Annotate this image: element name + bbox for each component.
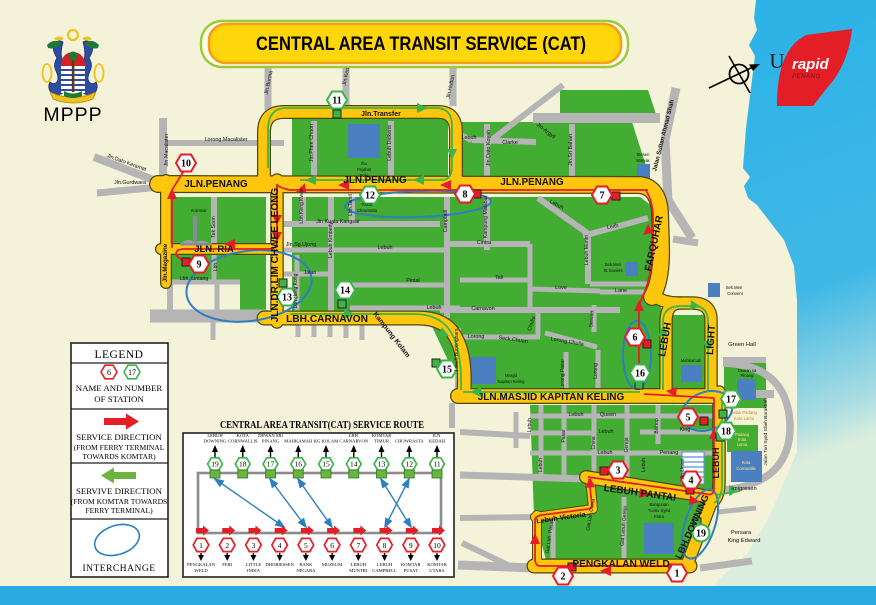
svg-text:Lebuh: Lebuh	[598, 450, 613, 456]
svg-text:Lorong: Lorong	[593, 363, 599, 379]
svg-text:LEBUH: LEBUH	[377, 562, 393, 567]
svg-text:PENGKALAN WELD: PENGKALAN WELD	[572, 559, 669, 570]
svg-text:5: 5	[686, 413, 691, 424]
svg-text:18: 18	[721, 427, 731, 438]
svg-text:Lbh Hong Kong: Lbh Hong Kong	[293, 273, 299, 308]
svg-text:Kapitan Keling: Kapitan Keling	[497, 379, 525, 384]
svg-text:Persara: Persara	[731, 530, 752, 536]
svg-text:14: 14	[340, 286, 350, 297]
svg-text:2: 2	[561, 572, 566, 583]
svg-text:Jln.Dato Koyah: Jln.Dato Koyah	[486, 130, 492, 167]
svg-text:DOWNING: DOWNING	[204, 439, 227, 444]
svg-text:Tunku Syed: Tunku Syed	[648, 508, 671, 513]
svg-text:16: 16	[635, 369, 645, 380]
svg-text:Jln.Macalister: Jln.Macalister	[164, 133, 170, 166]
svg-text:Masjid: Masjid	[505, 373, 518, 378]
svg-text:Polis: Polis	[359, 173, 368, 178]
svg-text:Lebuh: Lebuh	[462, 135, 477, 141]
svg-text:LITTLE: LITTLE	[246, 562, 262, 567]
svg-text:19: 19	[211, 460, 219, 469]
svg-text:Lebuh: Lebuh	[538, 458, 544, 472]
svg-text:Stewart: Stewart	[588, 310, 595, 328]
svg-text:4: 4	[689, 476, 694, 487]
svg-text:NAME AND NUMBER: NAME AND NUMBER	[76, 383, 163, 393]
svg-text:Lebuh Muntri: Lebuh Muntri	[584, 235, 590, 265]
svg-text:15: 15	[442, 365, 452, 376]
svg-text:MUZEUM: MUZEUM	[322, 562, 342, 567]
svg-text:Clarke: Clarke	[502, 140, 518, 146]
svg-text:Sek.Men: Sek.Men	[605, 262, 622, 267]
svg-text:Lbh.Tamil: Lbh.Tamil	[348, 194, 354, 215]
svg-text:Pejabat: Pejabat	[357, 167, 372, 172]
svg-text:Tali: Tali	[495, 275, 503, 281]
svg-text:7: 7	[356, 541, 360, 550]
svg-text:Lbh: Lbh	[213, 263, 219, 272]
svg-text:FERRY TERMINAL): FERRY TERMINAL)	[85, 506, 153, 515]
svg-text:Pinang: Pinang	[740, 373, 754, 378]
svg-text:3: 3	[616, 466, 621, 477]
svg-text:Campbell: Campbell	[443, 210, 449, 233]
svg-text:LEBUH: LEBUH	[207, 433, 223, 438]
svg-text:6: 6	[633, 333, 638, 344]
svg-text:Chowrasta: Chowrasta	[357, 208, 378, 213]
svg-text:MPPP: MPPP	[43, 104, 102, 126]
svg-text:Jln.Gurdwara: Jln.Gurdwara	[114, 180, 146, 186]
svg-text:JLN.MASJID KAPITAN KELING: JLN.MASJID KAPITAN KELING	[478, 392, 625, 403]
svg-text:Cornwallis: Cornwallis	[736, 466, 755, 471]
svg-text:4: 4	[278, 541, 282, 550]
svg-text:11: 11	[332, 96, 341, 107]
svg-text:JLN.PENANG: JLN.PENANG	[343, 175, 407, 186]
svg-text:WELD: WELD	[194, 568, 208, 573]
svg-text:15: 15	[322, 460, 330, 469]
svg-text:CHOWRASTA: CHOWRASTA	[395, 439, 424, 444]
svg-text:CENTRAL AREA TRANSIT SERVICE (: CENTRAL AREA TRANSIT SERVICE (CAT)	[256, 34, 586, 55]
svg-text:Kampung Malabar: Kampung Malabar	[483, 196, 489, 239]
svg-text:JLN. RIA: JLN. RIA	[194, 244, 234, 255]
svg-text:PENANG: PENANG	[792, 74, 821, 80]
svg-text:SERVICE DIRECTION: SERVICE DIRECTION	[76, 432, 162, 442]
svg-text:Lebuh Dickens: Lebuh Dickens	[387, 125, 393, 161]
svg-text:Lebuh: Lebuh	[427, 305, 442, 311]
svg-text:16: 16	[295, 460, 303, 469]
svg-text:Komtar: Komtar	[191, 208, 207, 214]
svg-text:Gereja: Gereja	[624, 437, 630, 452]
svg-text:Convent: Convent	[727, 291, 743, 296]
svg-text:Lbh.Keng Kwee: Lbh.Keng Kwee	[299, 188, 305, 224]
svg-text:13: 13	[378, 460, 386, 469]
svg-text:Pasar: Pasar	[561, 429, 567, 442]
svg-text:KOMTAR: KOMTAR	[427, 562, 447, 567]
svg-text:St.Xaviers: St.Xaviers	[603, 268, 622, 273]
svg-text:KOTA: KOTA	[237, 433, 250, 438]
svg-text:LBH.: LBH.	[349, 433, 359, 438]
svg-text:Cintra: Cintra	[477, 240, 491, 246]
svg-text:INTERCHANGE: INTERCHANGE	[82, 564, 155, 574]
svg-text:9: 9	[409, 541, 413, 550]
svg-text:King Edward: King Edward	[728, 538, 761, 544]
svg-text:CENTRAL AREA TRANSIT(CAT) SERV: CENTRAL AREA TRANSIT(CAT) SERVICE ROUTE	[220, 420, 424, 431]
svg-text:Love: Love	[555, 285, 567, 291]
svg-text:Ibu: Ibu	[361, 161, 367, 166]
svg-text:Lbh. Lintang: Lbh. Lintang	[180, 276, 209, 282]
svg-text:12: 12	[406, 460, 414, 469]
svg-text:Lorong: Lorong	[468, 334, 485, 340]
svg-text:JLN.PENANG: JLN.PENANG	[500, 177, 564, 188]
svg-text:Lebuh: Lebuh	[641, 458, 647, 472]
svg-text:KOMTAR: KOMTAR	[401, 562, 421, 567]
svg-text:Pintal: Pintal	[406, 278, 420, 284]
svg-text:CORNWALLIS: CORNWALLIS	[228, 439, 258, 444]
svg-text:Jln.Phee Choon: Jln.Phee Choon	[309, 124, 315, 162]
svg-text:rapid: rapid	[792, 56, 830, 73]
svg-text:6: 6	[330, 541, 334, 550]
svg-text:Jln.Sri Bahari: Jln.Sri Bahari	[568, 134, 574, 166]
svg-text:DHOBIESSEN: DHOBIESSEN	[265, 562, 294, 567]
svg-text:3: 3	[252, 541, 256, 550]
svg-text:Sek.Men: Sek.Men	[726, 285, 743, 290]
svg-text:TIMUR: TIMUR	[374, 439, 390, 444]
svg-text:10: 10	[433, 541, 441, 550]
svg-text:Green Hall: Green Hall	[728, 342, 756, 348]
svg-text:Lebuh: Lebuh	[378, 245, 393, 251]
svg-text:Lorong Pasar: Lorong Pasar	[560, 359, 566, 389]
svg-text:Jalan: Jalan	[304, 270, 317, 276]
svg-text:DEWAN SRI: DEWAN SRI	[258, 433, 283, 438]
svg-text:14: 14	[350, 460, 358, 469]
svg-text:Penang: Penang	[660, 450, 679, 456]
svg-text:1: 1	[199, 541, 203, 550]
svg-text:King: King	[680, 427, 691, 433]
svg-text:BANK: BANK	[299, 562, 313, 567]
svg-text:Minyak: Minyak	[636, 158, 650, 163]
svg-text:PINANG: PINANG	[262, 439, 280, 444]
svg-text:19: 19	[696, 529, 706, 540]
svg-text:Stesen: Stesen	[636, 152, 650, 157]
svg-text:KG KOLAM: KG KOLAM	[314, 439, 339, 444]
svg-text:Putra: Putra	[654, 514, 665, 519]
svg-text:MAHKAMAH: MAHKAMAH	[284, 439, 313, 444]
svg-text:5: 5	[304, 541, 308, 550]
svg-text:1: 1	[675, 569, 680, 580]
svg-text:LBH.CARNAVON: LBH.CARNAVON	[286, 314, 368, 325]
svg-text:CARNARVON: CARNARVON	[339, 439, 368, 444]
svg-text:PENGKALAN: PENGKALAN	[187, 562, 216, 567]
svg-text:Jalan Tun Syed Sheh Barakbah: Jalan Tun Syed Sheh Barakbah	[763, 398, 769, 466]
svg-text:13: 13	[282, 293, 292, 304]
svg-text:NEGARA: NEGARA	[296, 568, 316, 573]
svg-text:18: 18	[239, 460, 247, 469]
svg-text:Jalan Padang: Jalan Padang	[731, 410, 757, 415]
svg-text:Lorong.Macalister: Lorong.Macalister	[205, 137, 248, 143]
svg-text:Lane: Lane	[615, 288, 627, 294]
svg-text:(FROM FERRY TERMINAL: (FROM FERRY TERMINAL	[74, 443, 165, 452]
svg-text:UTARA: UTARA	[429, 568, 445, 573]
svg-text:9: 9	[197, 260, 202, 271]
svg-text:PUSAT: PUSAT	[404, 568, 418, 573]
svg-text:11: 11	[433, 460, 440, 469]
svg-text:Jln.Transfer: Jln.Transfer	[361, 111, 401, 118]
svg-text:17: 17	[267, 460, 275, 469]
svg-text:10: 10	[181, 159, 191, 170]
svg-text:Pasar: Pasar	[362, 202, 374, 207]
svg-text:8: 8	[463, 190, 468, 201]
svg-text:Mahkamah: Mahkamah	[681, 358, 702, 363]
svg-text:KOMTAR: KOMTAR	[372, 433, 392, 438]
svg-text:Lama: Lama	[737, 442, 748, 447]
svg-text:Carnavon: Carnavon	[471, 306, 494, 312]
svg-text:KEDAH: KEDAH	[429, 439, 446, 444]
svg-text:8: 8	[383, 541, 387, 550]
svg-text:OF STATION: OF STATION	[94, 394, 144, 404]
svg-text:Lebuh: Lebuh	[527, 418, 533, 432]
svg-text:CAMPBELL: CAMPBELL	[372, 568, 397, 573]
svg-text:SERVIVE DIRECTION: SERVIVE DIRECTION	[76, 486, 163, 496]
svg-text:JLN.DR.LIM CHWEE LEONG: JLN.DR.LIM CHWEE LEONG	[270, 188, 281, 323]
svg-text:Lebuh: Lebuh	[569, 412, 584, 418]
svg-text:Lebuh: Lebuh	[599, 429, 614, 435]
svg-text:Imigresen: Imigresen	[731, 486, 756, 492]
svg-text:7: 7	[600, 191, 605, 202]
svg-text:Jln.Sg.Ujong: Jln.Sg.Ujong	[286, 242, 317, 248]
svg-text:Lebuh Kimberly: Lebuh Kimberly	[328, 222, 334, 258]
svg-text:LIGHT: LIGHT	[705, 324, 718, 355]
svg-text:6: 6	[107, 368, 111, 377]
svg-text:Kota: Kota	[742, 460, 751, 465]
svg-text:(FROM KOMTAR TOWARDS: (FROM KOMTAR TOWARDS	[71, 497, 168, 506]
svg-text:China: China	[591, 436, 597, 449]
svg-text:Bishop: Bishop	[654, 418, 660, 434]
svg-text:JLN.: JLN.	[432, 433, 441, 438]
svg-text:Lebuh Buckingham: Lebuh Buckingham	[454, 329, 460, 372]
svg-text:17: 17	[726, 395, 736, 406]
svg-text:FERI: FERI	[222, 562, 232, 567]
svg-text:INDIA: INDIA	[247, 568, 261, 573]
svg-text:Jln.Magazine: Jln.Magazine	[162, 243, 169, 282]
svg-text:LEBUH: LEBUH	[711, 448, 721, 479]
svg-text:Queen: Queen	[600, 412, 616, 418]
svg-text:2: 2	[225, 541, 229, 550]
svg-text:LEGEND: LEGEND	[95, 349, 144, 361]
svg-text:Bangunan: Bangunan	[649, 502, 669, 507]
svg-text:LEBUH: LEBUH	[351, 562, 367, 567]
svg-text:MUNTRI: MUNTRI	[349, 568, 368, 573]
svg-text:TOWARDS KOMTAR): TOWARDS KOMTAR)	[82, 452, 156, 461]
svg-text:JLN.PENANG: JLN.PENANG	[184, 179, 248, 190]
svg-text:Jln Kuala Kangsar: Jln Kuala Kangsar	[316, 219, 360, 225]
svg-text:17: 17	[128, 368, 136, 377]
svg-text:Tek Soon: Tek Soon	[211, 216, 217, 238]
svg-text:Kota Lama: Kota Lama	[734, 416, 755, 421]
svg-text:12: 12	[365, 191, 375, 202]
svg-text:Jln Union: Jln Union	[680, 458, 686, 479]
